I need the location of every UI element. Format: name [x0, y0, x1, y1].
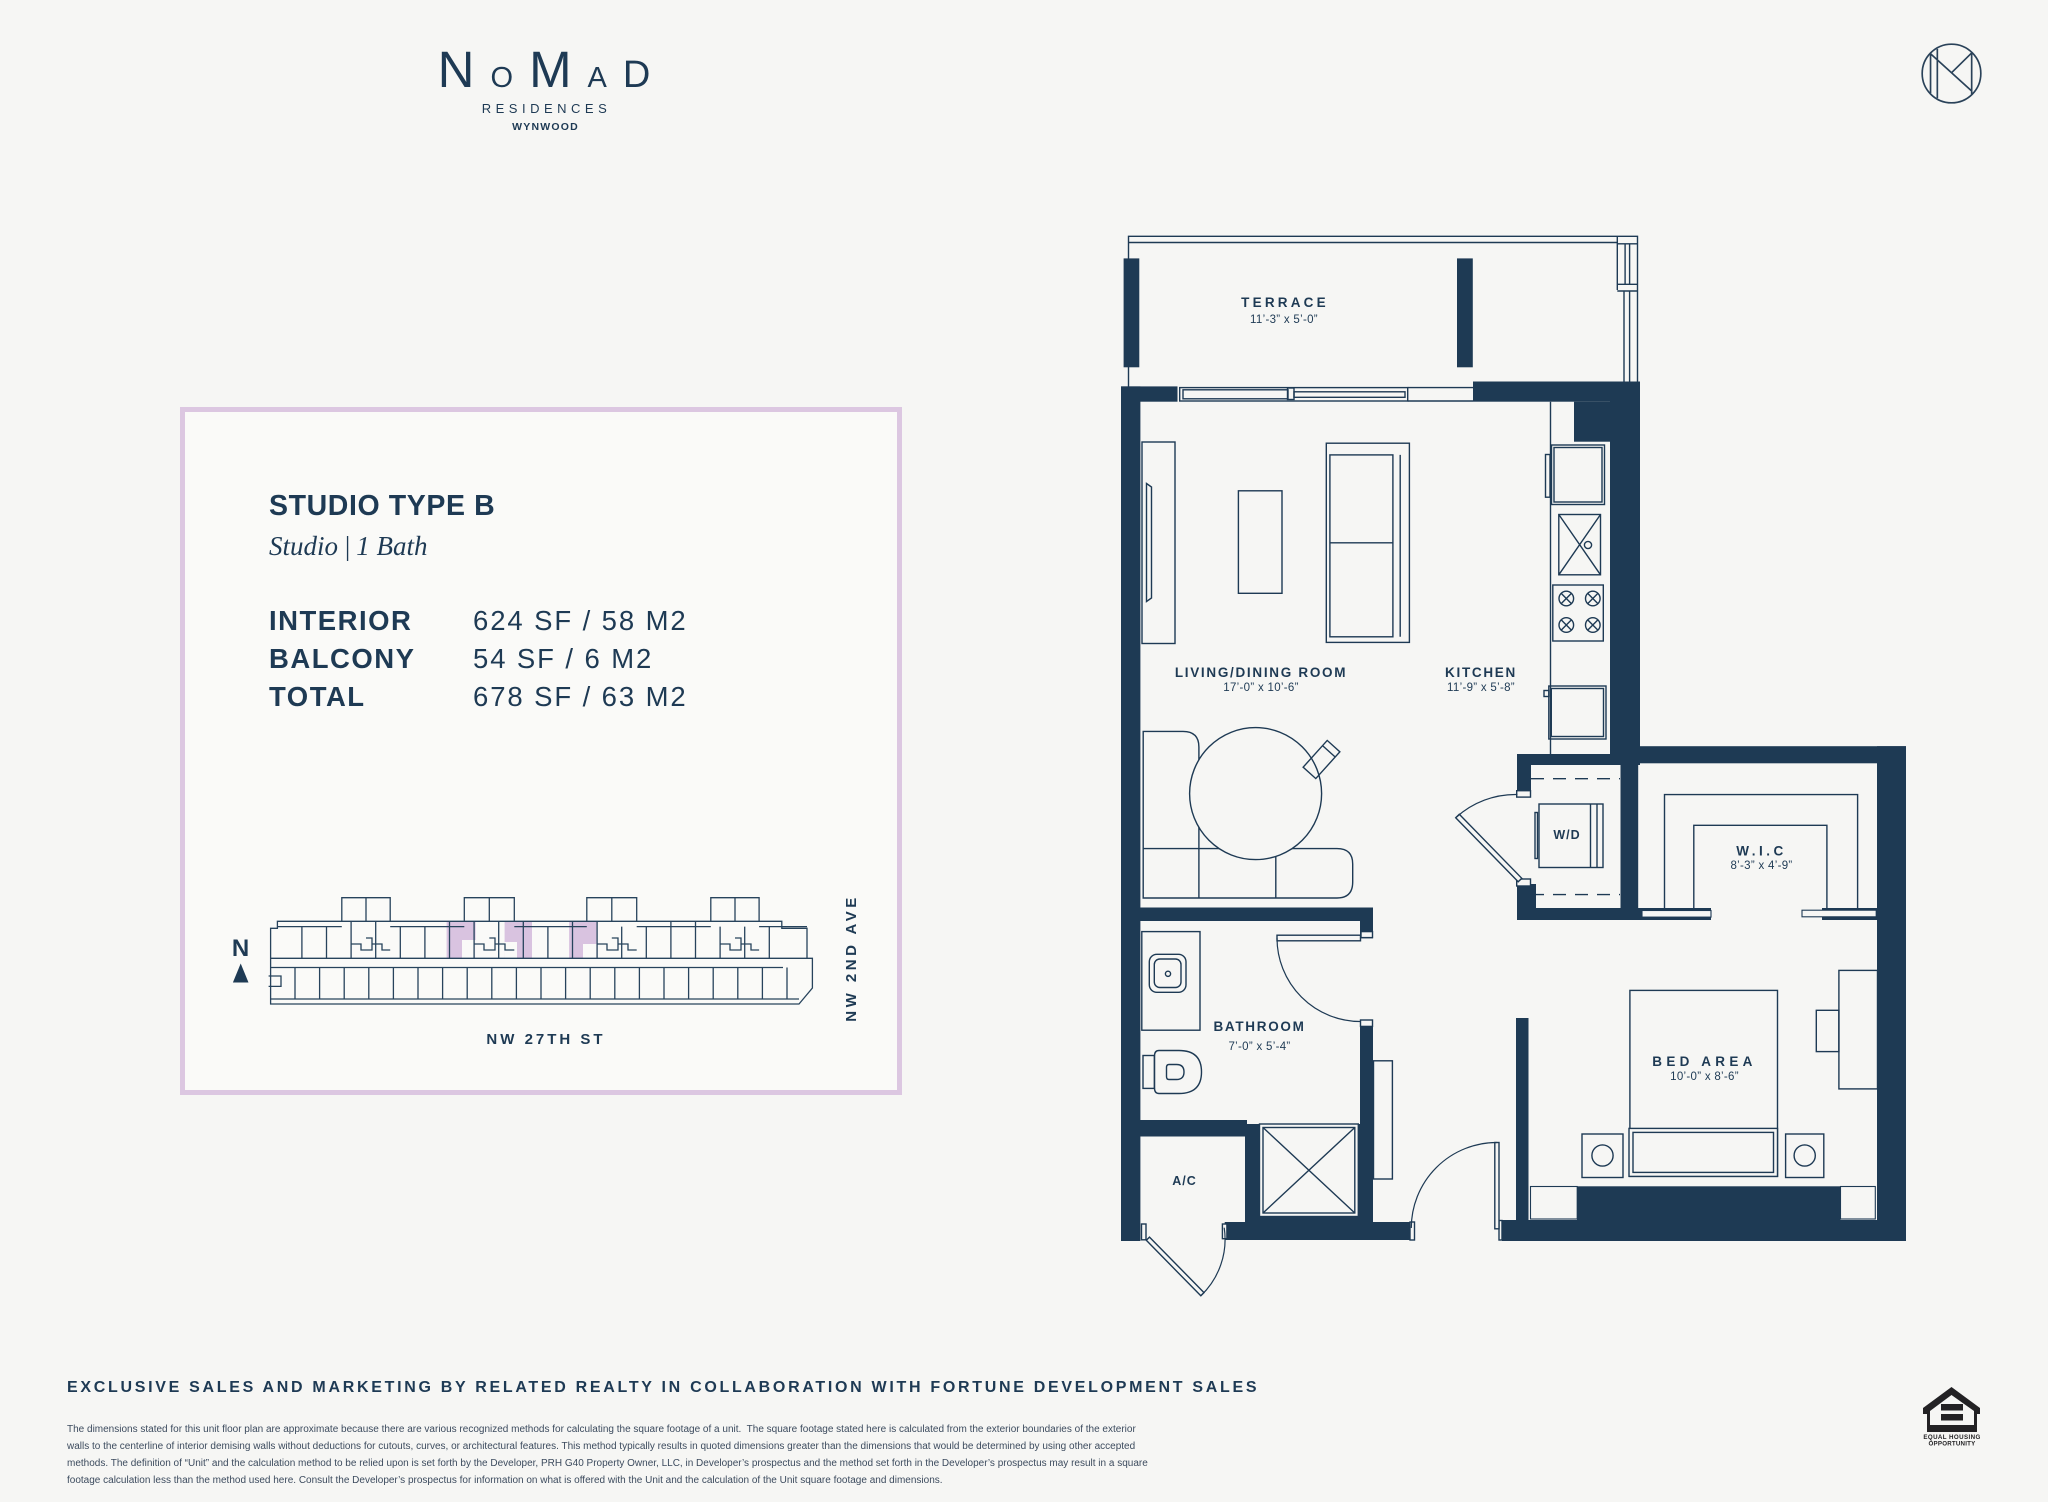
svg-text:KITCHEN: KITCHEN — [1445, 665, 1517, 680]
svg-text:BED AREA: BED AREA — [1652, 1054, 1756, 1069]
svg-text:10’-0” x 8’-6”: 10’-0” x 8’-6” — [1670, 1071, 1739, 1083]
svg-text:W/D: W/D — [1553, 828, 1580, 842]
svg-text:7’-0” x 5’-4”: 7’-0” x 5’-4” — [1228, 1041, 1290, 1053]
svg-text:8’-3” x 4’-9”: 8’-3” x 4’-9” — [1730, 860, 1792, 872]
svg-text:A/C: A/C — [1172, 1174, 1197, 1188]
svg-text:11’-3” x 5’-0”: 11’-3” x 5’-0” — [1250, 314, 1318, 326]
svg-text:W.I.C: W.I.C — [1736, 844, 1787, 859]
svg-text:LIVING/DINING ROOM: LIVING/DINING ROOM — [1175, 665, 1347, 680]
svg-text:OPPORTUNITY: OPPORTUNITY — [1929, 1441, 1977, 1448]
svg-text:TERRACE: TERRACE — [1241, 295, 1329, 310]
svg-text:BATHROOM: BATHROOM — [1213, 1019, 1305, 1034]
svg-text:17’-0” x 10’-6”: 17’-0” x 10’-6” — [1223, 682, 1298, 694]
svg-text:11’-9” x 5’-8”: 11’-9” x 5’-8” — [1447, 682, 1515, 694]
